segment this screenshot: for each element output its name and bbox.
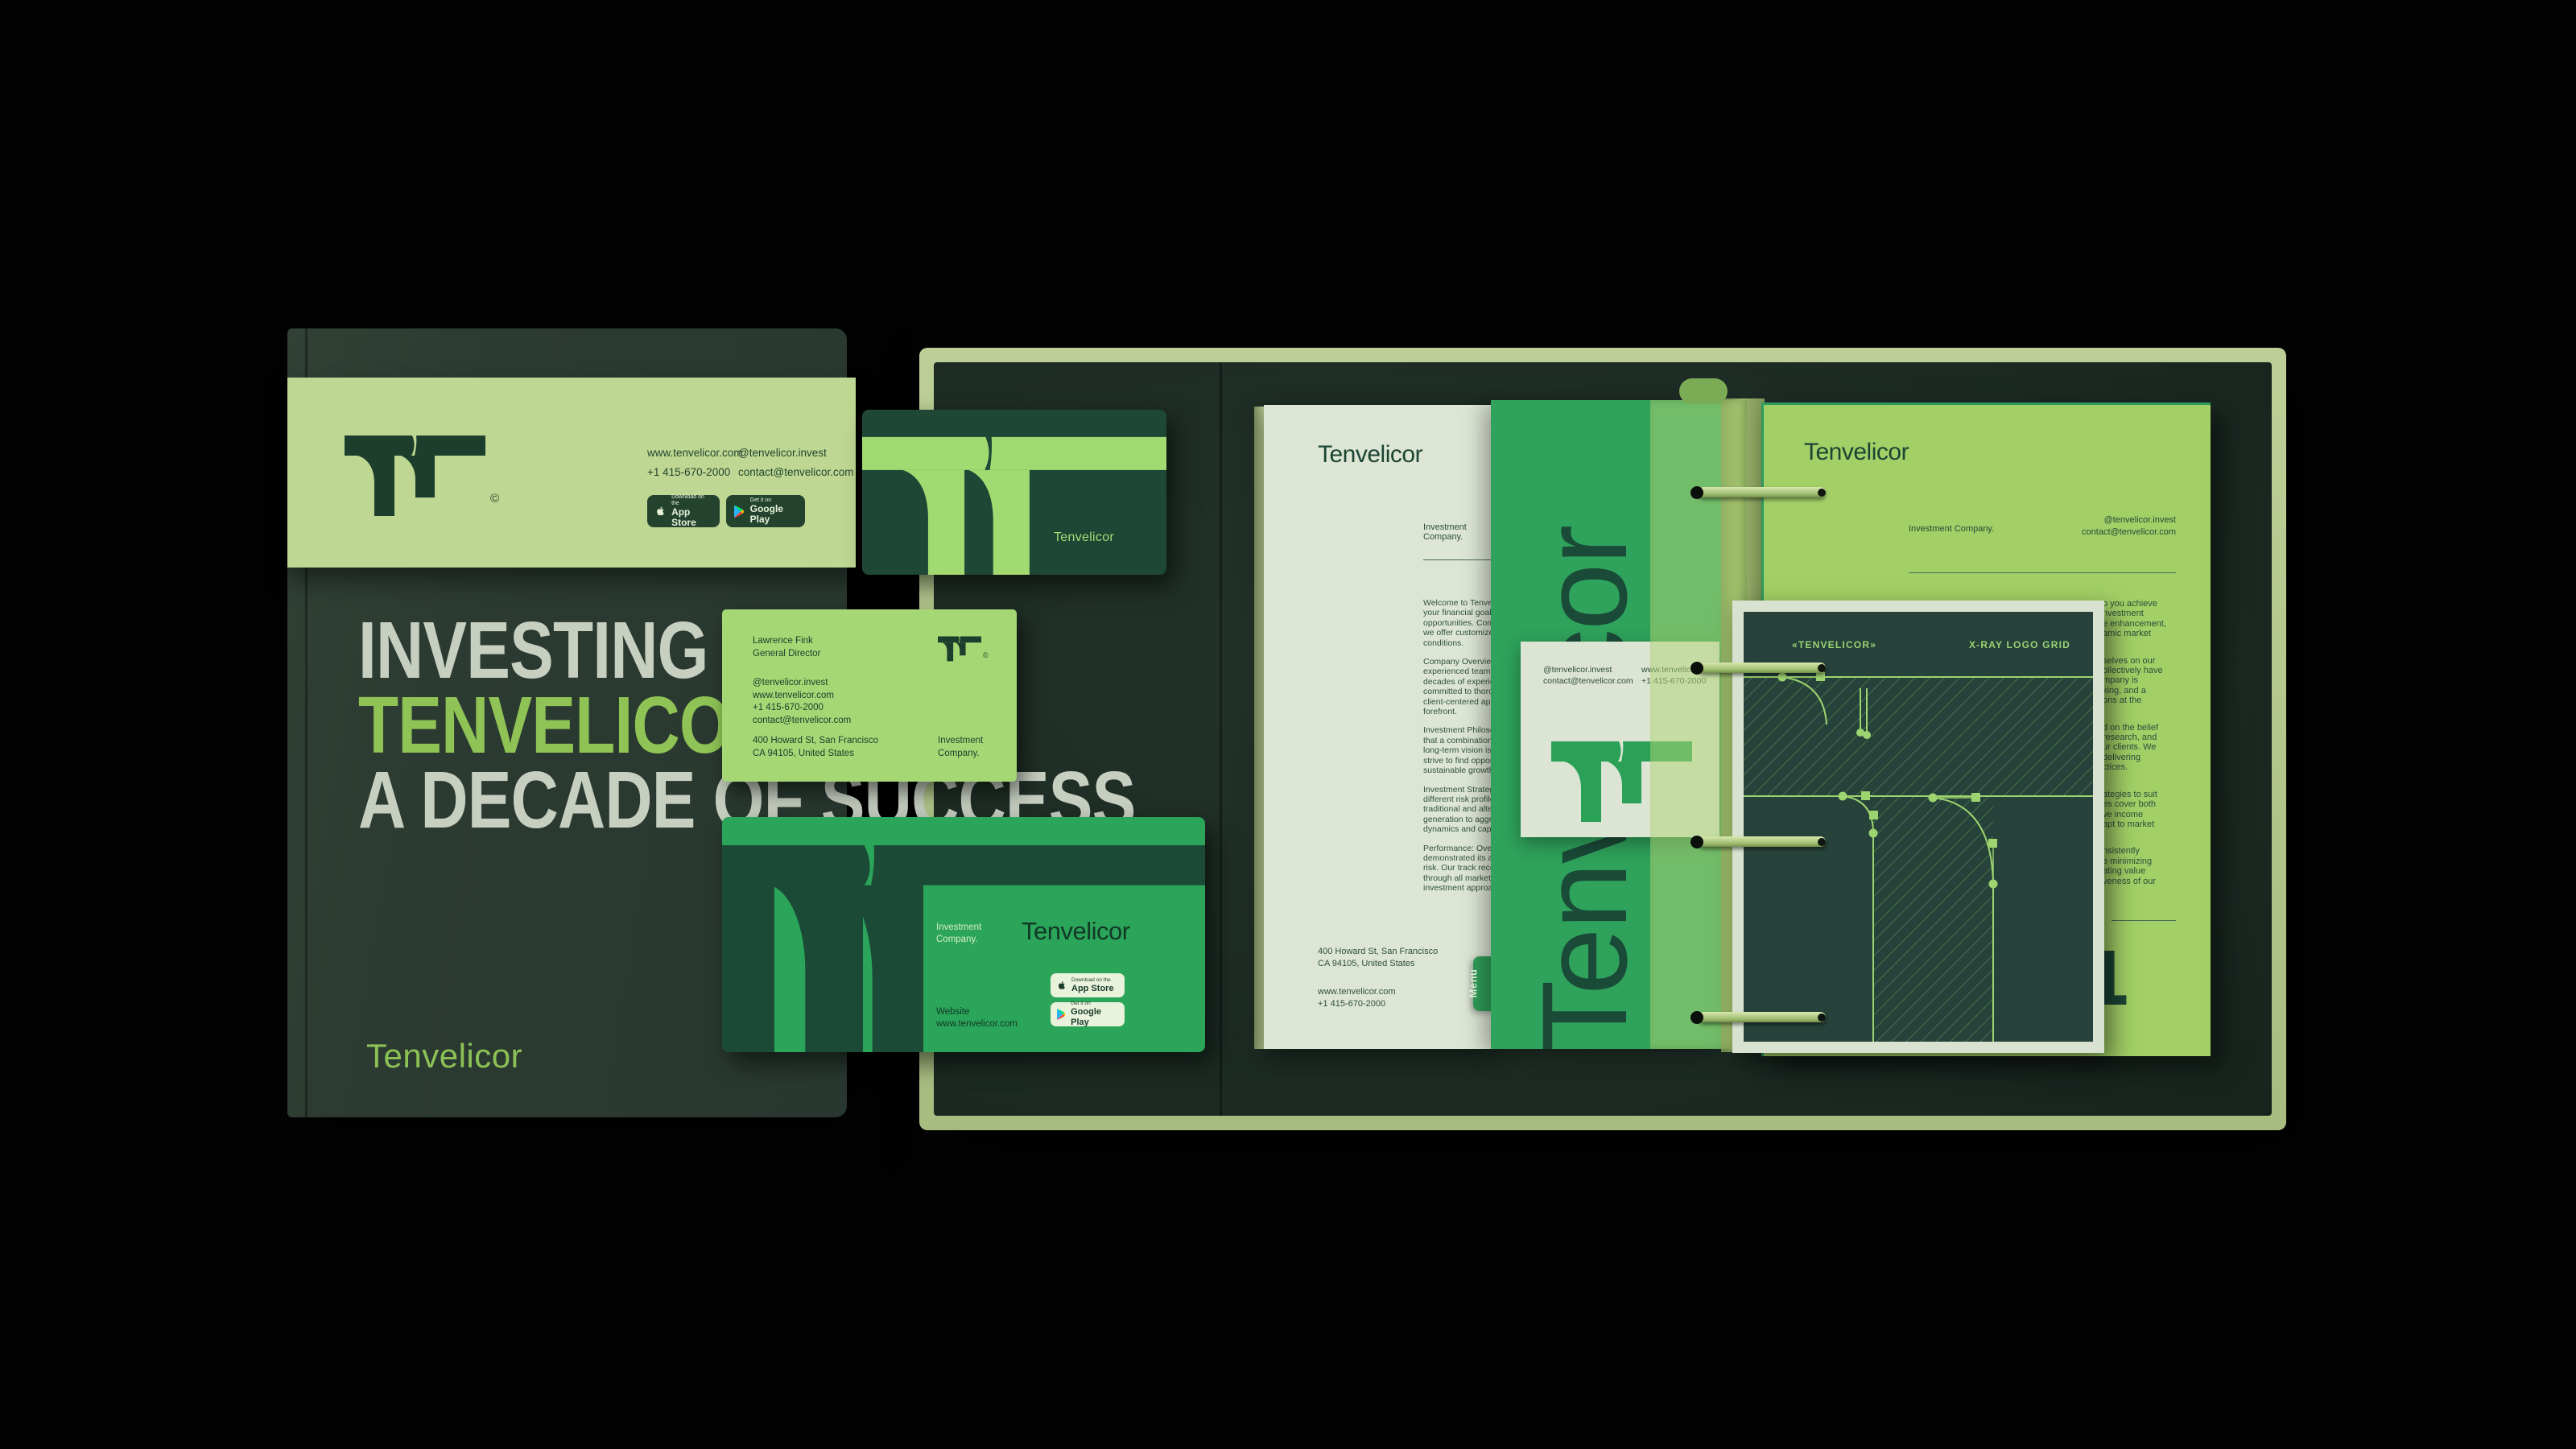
banner-social: @tenvelicor.invest xyxy=(738,444,854,463)
envelope: Investment Company. Tenvelicor Website w… xyxy=(722,817,1205,1052)
apple-icon xyxy=(655,504,666,518)
tt-monogram-icon xyxy=(345,429,485,518)
copyright-mark: © xyxy=(490,492,499,506)
business-card-address2: CA 94105, United States xyxy=(753,748,878,761)
contact-card-email: contact@tenvelicor.com xyxy=(1543,675,1633,687)
google-play-icon xyxy=(734,505,745,518)
right-page-heading: Tenvelicor xyxy=(1804,439,1909,466)
document-phone: +1 415-670-2000 xyxy=(1318,998,1396,1010)
right-page-social: @tenvelicor.invest xyxy=(2060,514,2176,526)
binder-ring xyxy=(1690,658,1827,679)
envelope-website: Website www.tenvelicor.com xyxy=(936,1006,1018,1030)
google-play-badge: Get it onGoogle Play xyxy=(726,495,805,527)
business-card-website: www.tenvelicor.com xyxy=(753,690,851,703)
right-page-rule xyxy=(1909,572,2176,573)
document-page: Tenvelicor Investment Company. Welcome t… xyxy=(1264,405,1492,1049)
google-play-pre: Get it on xyxy=(1071,1001,1118,1007)
right-page-fragment: o you achieve nvestment e enhancement, a… xyxy=(2103,599,2209,639)
binder-ring xyxy=(1690,482,1827,503)
mockup-scene: © www.tenvelicor.com +1 415-670-2000 @te… xyxy=(0,0,2576,1449)
business-card-person: Lawrence Fink General Director xyxy=(753,635,820,660)
person-name: Lawrence Fink xyxy=(753,635,820,648)
website-label: Website xyxy=(936,1006,1018,1018)
document-rule xyxy=(1423,559,1492,560)
business-card-contact: @tenvelicor.invest www.tenvelicor.com +1… xyxy=(753,677,851,727)
tt-monogram-cropped-icon xyxy=(862,410,1166,575)
contact-card-col1: @tenvelicor.invest contact@tenvelicor.co… xyxy=(1543,664,1633,687)
app-store-pre: Download on the xyxy=(1071,977,1114,984)
business-card-phone: +1 415-670-2000 xyxy=(753,702,851,715)
business-card-tagline: Investment Company. xyxy=(938,735,1010,760)
right-page-contact: @tenvelicor.invest contact@tenvelicor.co… xyxy=(2060,514,2176,539)
banner-phone: +1 415-670-2000 xyxy=(647,463,743,482)
document-tagline: Investment Company. xyxy=(1423,522,1492,542)
banner-contact-col2: @tenvelicor.invest contact@tenvelicor.co… xyxy=(738,444,854,482)
copyright-mark: © xyxy=(983,651,989,659)
right-page-fragment: ategies to suit es cover both ve income … xyxy=(2103,790,2209,830)
banner-website: www.tenvelicor.com xyxy=(647,444,743,463)
binder-ring xyxy=(1690,1007,1827,1028)
google-play-badge: Get it onGoogle Play xyxy=(1051,1002,1125,1026)
document-address2: CA 94105, United States xyxy=(1318,958,1438,970)
business-card-address: 400 Howard St, San Francisco CA 94105, U… xyxy=(753,735,878,760)
banner-contact-col1: www.tenvelicor.com +1 415-670-2000 xyxy=(647,444,743,482)
app-store-name: App Store xyxy=(1071,984,1114,994)
box-lid-seam xyxy=(1220,362,1222,1116)
menu-tab-label: Menu xyxy=(1467,969,1479,998)
website-url: www.tenvelicor.com xyxy=(936,1018,1018,1030)
right-page-body: o you achieve nvestment e enhancement, a… xyxy=(2103,599,2209,903)
folded-card: Tenvelicor xyxy=(862,410,1166,575)
right-page-rule2 xyxy=(2112,920,2176,921)
person-role: General Director xyxy=(753,648,820,661)
envelope-tagline: Investment Company. xyxy=(936,922,1009,946)
document-address: 400 Howard St, San Francisco CA 94105, U… xyxy=(1318,946,1438,969)
banner-email: contact@tenvelicor.com xyxy=(738,463,854,482)
business-card-email: contact@tenvelicor.com xyxy=(753,715,851,728)
book-logotype: Tenvelicor xyxy=(366,1037,522,1075)
tt-monogram-icon xyxy=(938,634,981,663)
book-banner: © www.tenvelicor.com +1 415-670-2000 @te… xyxy=(287,378,856,568)
business-card-social: @tenvelicor.invest xyxy=(753,677,851,690)
envelope-wordmark: Tenvelicor xyxy=(1022,917,1130,946)
contact-card-social: @tenvelicor.invest xyxy=(1543,664,1633,675)
right-page-tagline: Investment Company. xyxy=(1909,524,1994,534)
document-address1: 400 Howard St, San Francisco xyxy=(1318,946,1438,958)
folded-card-wordmark: Tenvelicor xyxy=(1054,530,1114,545)
binder-ring xyxy=(1690,832,1827,852)
document-heading: Tenvelicor xyxy=(1318,441,1422,469)
app-store-name: App Store xyxy=(671,507,712,528)
right-page-email: contact@tenvelicor.com xyxy=(2060,526,2176,539)
document-website: www.tenvelicor.com xyxy=(1318,986,1396,998)
app-store-badge: Download on theApp Store xyxy=(647,495,720,527)
right-page-fragment: nsistently e minimizing ating value vene… xyxy=(2103,846,2209,886)
binder-spine-cap xyxy=(1679,378,1728,404)
app-store-pre: Download on the xyxy=(671,494,712,507)
business-card: Lawrence Fink General Director @tenvelic… xyxy=(722,609,1017,782)
apple-icon xyxy=(1057,980,1067,991)
google-play-name: Google Play xyxy=(750,504,797,525)
right-page-fragment: selves on our ollectively have mpany is … xyxy=(2103,656,2209,706)
app-store-badge: Download on theApp Store xyxy=(1051,973,1125,997)
business-card-address1: 400 Howard St, San Francisco xyxy=(753,735,878,748)
right-page-fragment: d on the belief research, and ur clients… xyxy=(2103,723,2209,773)
google-play-icon xyxy=(1057,1009,1066,1020)
document-footer-contact: www.tenvelicor.com +1 415-670-2000 xyxy=(1318,986,1396,1009)
google-play-name: Google Play xyxy=(1071,1007,1118,1028)
